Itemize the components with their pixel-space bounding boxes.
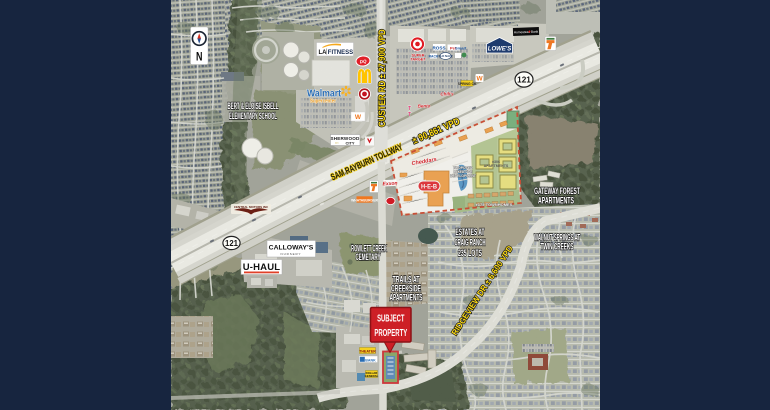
svg-text:ELEMENTARY SCHOOL: ELEMENTARY SCHOOL [229, 113, 277, 122]
svg-text:SPRING CK: SPRING CK [458, 82, 477, 86]
svg-text:LA: LA [319, 50, 328, 56]
svg-text:APARTMENTS: APARTMENTS [390, 293, 423, 303]
svg-text:Smart: Smart [455, 45, 467, 50]
svg-text:CUSTER RD ± 27,900 VPD: CUSTER RD ± 27,900 VPD [376, 29, 387, 127]
svg-text:CITY: CITY [345, 141, 354, 146]
svg-text:Walmart: Walmart [307, 88, 342, 100]
svg-text:BERT & ELOISE ISBELL: BERT & ELOISE ISBELL [228, 103, 279, 112]
svg-text:WALNUT SPRINGS AT: WALNUT SPRINGS AT [534, 234, 580, 243]
svg-text:ROSS: ROSS [432, 45, 445, 50]
svg-text:PROPERTY: PROPERTY [374, 326, 407, 338]
svg-text:OLD NAVY: OLD NAVY [438, 54, 452, 58]
svg-text:N: N [196, 52, 202, 64]
svg-text:NURSERY: NURSERY [281, 252, 302, 256]
svg-text:ESTATES AT: ESTATES AT [456, 228, 485, 238]
svg-text:W: W [476, 76, 483, 83]
svg-text:SUBJECT: SUBJECT [377, 312, 405, 324]
svg-text:T: T [408, 112, 411, 118]
svg-text:CENTRAL MOTORS INC: CENTRAL MOTORS INC [234, 205, 269, 209]
svg-text:GENERAL: GENERAL [365, 374, 379, 378]
svg-text:BANK: BANK [365, 358, 376, 362]
svg-text:ROWLETT CREEK: ROWLETT CREEK [351, 245, 387, 254]
svg-text:Bento: Bento [418, 104, 431, 109]
svg-text:CEMETARY: CEMETARY [355, 254, 380, 263]
svg-text:LOWE'S: LOWE'S [488, 47, 511, 53]
svg-text:Exxon: Exxon [382, 181, 397, 188]
svg-text:DQ: DQ [359, 59, 367, 65]
svg-text:Chili's: Chili's [440, 92, 454, 97]
svg-text:CALLOWAY’S: CALLOWAY’S [269, 245, 314, 252]
svg-text:121: 121 [225, 239, 239, 248]
svg-text:U-HAUL: U-HAUL [243, 262, 281, 273]
svg-text:W: W [355, 114, 362, 121]
svg-text:WHATABURGER: WHATABURGER [351, 198, 378, 202]
svg-text:Supercenter: Supercenter [310, 98, 336, 105]
svg-text:THEATER: THEATER [359, 349, 376, 353]
svg-text:FITNESS: FITNESS [328, 50, 353, 56]
svg-text:235 LOTS: 235 LOTS [458, 247, 482, 258]
svg-text:121: 121 [517, 76, 531, 85]
svg-text:TWIN CREEKS: TWIN CREEKS [541, 243, 574, 252]
svg-text:APARTMENTS: APARTMENTS [538, 195, 574, 206]
svg-text:TARGET: TARGET [410, 58, 426, 62]
